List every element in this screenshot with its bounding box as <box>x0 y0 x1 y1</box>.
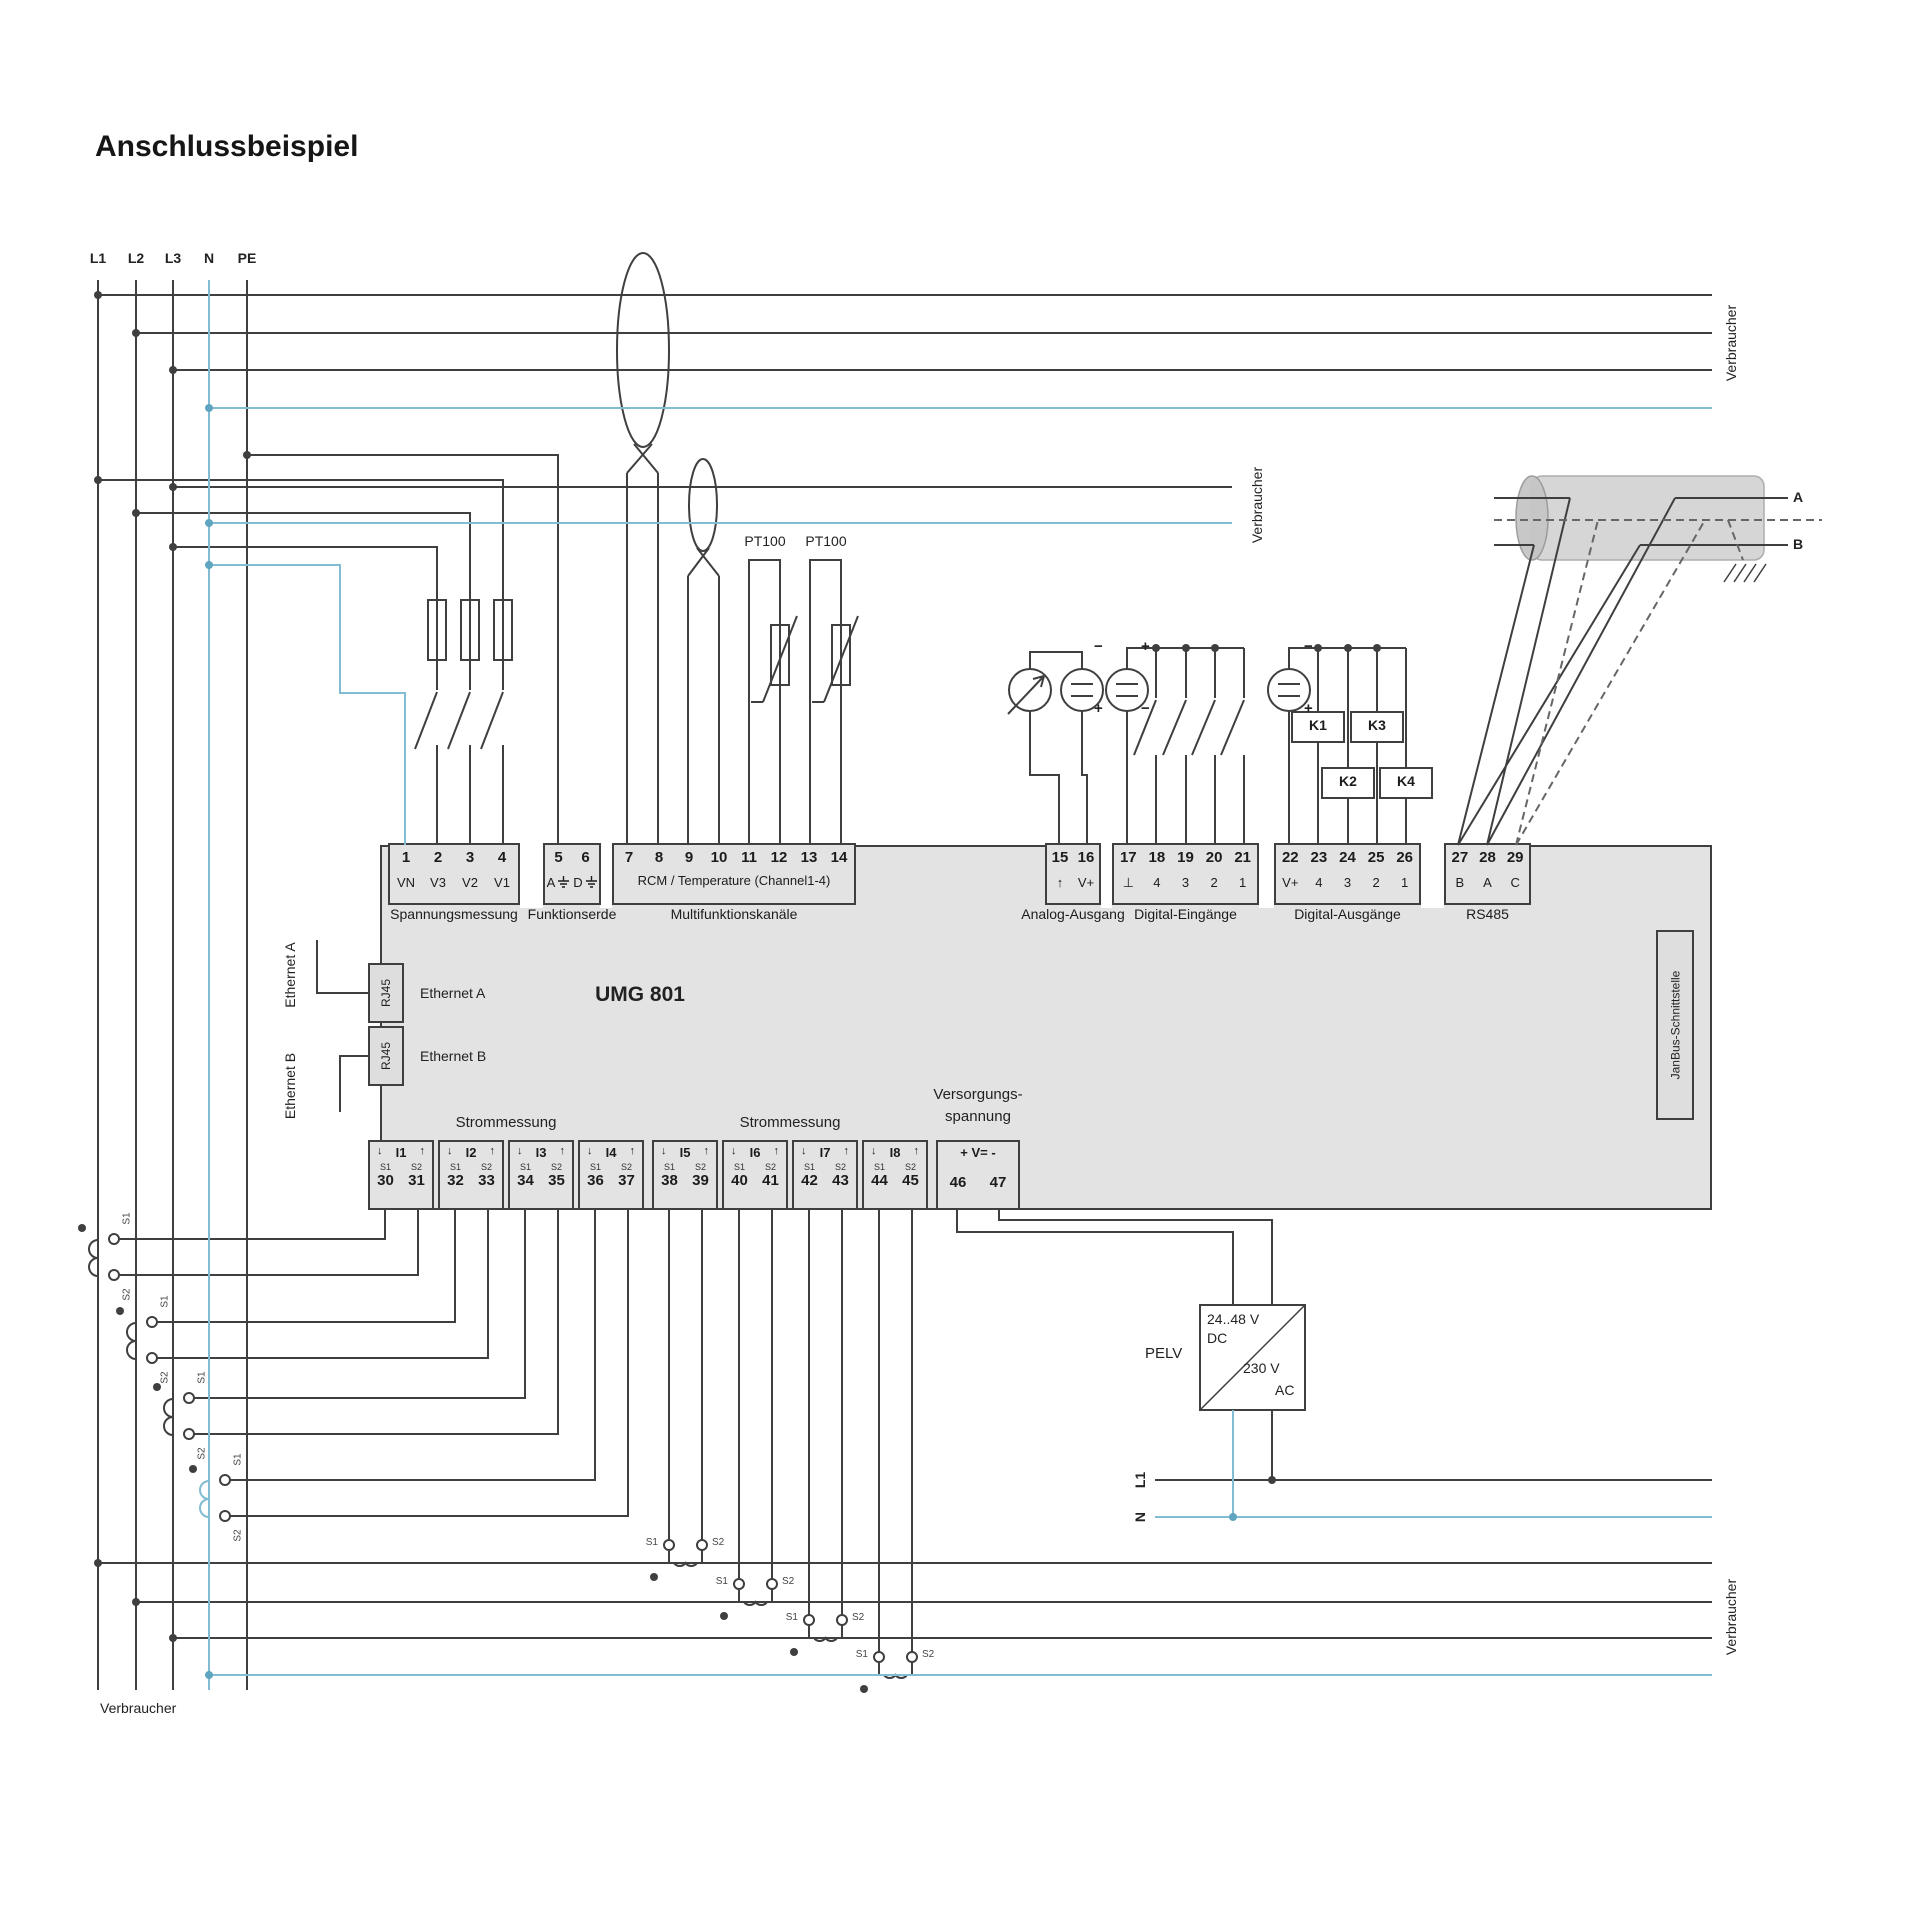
din-source-minus: − <box>1141 700 1150 717</box>
ethernet-b-label: Ethernet B <box>420 1048 486 1064</box>
consumer-label-bottom-left: Verbraucher <box>100 1700 176 1716</box>
bus-label-l2: L2 <box>124 250 148 266</box>
caption-earth: Funktionserde <box>512 906 632 922</box>
wiring-diagram: Anschlussbeispiel <box>0 0 1920 1920</box>
ct5-s1-label: S1 <box>628 1537 658 1548</box>
ct8-s2-label: S2 <box>922 1649 952 1660</box>
rs485-cable-end <box>1516 476 1548 560</box>
ct6-s1-label: S1 <box>698 1576 728 1587</box>
consumer-label-middle: Verbraucher <box>1249 445 1265 565</box>
relay-k3-label: K3 <box>1351 717 1403 733</box>
ct3-s2-label: S2 <box>197 1441 208 1467</box>
caption-voltage: Spannungsmessung <box>374 906 534 922</box>
device-name: UMG 801 <box>530 983 750 1007</box>
earth-ground-icon <box>1724 564 1766 582</box>
ct5-s2-label: S2 <box>712 1537 742 1548</box>
bus-label-l1: L1 <box>86 250 110 266</box>
din-source-plus: + <box>1141 638 1150 655</box>
ct2-s1-label: S1 <box>160 1289 171 1315</box>
dout-source-minus: − <box>1304 638 1313 655</box>
ct3-s1-label: S1 <box>197 1365 208 1391</box>
rj45-b-label: RJ45 <box>379 1042 393 1070</box>
analog-source-minus: − <box>1094 638 1103 655</box>
caption-supply-2: spannung <box>888 1108 1068 1125</box>
ethernet-b-cable-label: Ethernet B <box>282 1036 298 1136</box>
consumer-label-bottom-right: Verbraucher <box>1723 1557 1739 1677</box>
cable-label-a: A <box>1793 489 1803 505</box>
neutral-junction-dots <box>205 404 1237 1679</box>
bus-label-n: N <box>197 250 221 266</box>
rj45-port-b: RJ45 <box>368 1026 404 1086</box>
pelv-label: PELV <box>1145 1345 1182 1362</box>
bus-label-pe: PE <box>235 250 259 266</box>
janbus-label: JanBus-Schnittstelle <box>1668 971 1682 1080</box>
rj45-a-label: RJ45 <box>379 979 393 1007</box>
rcm-toroid-1 <box>617 253 669 447</box>
ct6-s2-label: S2 <box>782 1576 812 1587</box>
caption-current-right: Strommessung <box>690 1114 890 1131</box>
janbus-interface: JanBus-Schnittstelle <box>1656 930 1694 1120</box>
ct4-s1-label: S1 <box>233 1447 244 1473</box>
rcm-toroid-2 <box>689 459 717 551</box>
relay-k2-label: K2 <box>1322 773 1374 789</box>
rj45-port-a: RJ45 <box>368 963 404 1023</box>
ethernet-a-label: Ethernet A <box>420 985 485 1001</box>
consumer-label-top: Verbraucher <box>1723 283 1739 403</box>
relay-k4-label: K4 <box>1380 773 1432 789</box>
ethernet-a-cable-label: Ethernet A <box>282 925 298 1025</box>
caption-rs485: RS485 <box>1444 906 1531 922</box>
pelv-ac-voltage: 230 V <box>1243 1360 1280 1376</box>
supply-line-n-label: N <box>1132 1501 1148 1533</box>
ct7-s2-label: S2 <box>852 1612 882 1623</box>
ct2-s2-label: S2 <box>160 1365 171 1391</box>
shield-wires <box>1494 520 1822 845</box>
relay-k1-label: K1 <box>1292 717 1344 733</box>
dout-source-plus: + <box>1304 700 1313 717</box>
ct4-s2-label: S2 <box>233 1523 244 1549</box>
caption-multifunction: Multifunktionskanäle <box>644 906 824 922</box>
page-title: Anschlussbeispiel <box>95 130 358 164</box>
cable-label-b: B <box>1793 536 1803 552</box>
caption-supply-1: Versorgungs- <box>888 1086 1068 1103</box>
pelv-dc-voltage: 24..48 V <box>1207 1311 1259 1327</box>
ct1-s2-label: S2 <box>122 1282 133 1308</box>
black-wires <box>89 253 1788 1690</box>
ct1-s1-label: S1 <box>122 1206 133 1232</box>
pt100-label-2: PT100 <box>786 533 866 549</box>
ct-terminals <box>109 1234 917 1662</box>
pelv-ac: AC <box>1275 1382 1294 1398</box>
pelv-dc: DC <box>1207 1330 1227 1346</box>
bus-label-l3: L3 <box>161 250 185 266</box>
caption-digital-out: Digital-Ausgänge <box>1274 906 1421 922</box>
ct7-s1-label: S1 <box>768 1612 798 1623</box>
ct8-s1-label: S1 <box>838 1649 868 1660</box>
caption-current-left: Strommessung <box>406 1114 606 1131</box>
caption-digital-in: Digital-Eingänge <box>1112 906 1259 922</box>
supply-line-l1-label: L1 <box>1132 1464 1148 1496</box>
analog-source-plus: + <box>1094 700 1103 717</box>
